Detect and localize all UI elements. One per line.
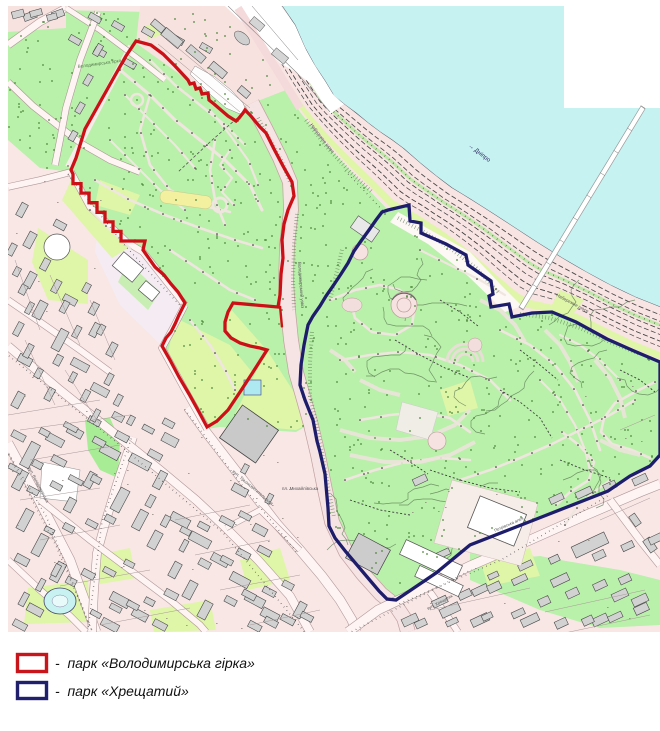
- svg-text:пл. Михайлівська: пл. Михайлівська: [282, 485, 319, 491]
- svg-text:- парк «Володимирська гірка»: - парк «Володимирська гірка»: [55, 655, 255, 671]
- svg-text:- парк «Хрещатий»: - парк «Хрещатий»: [55, 683, 189, 699]
